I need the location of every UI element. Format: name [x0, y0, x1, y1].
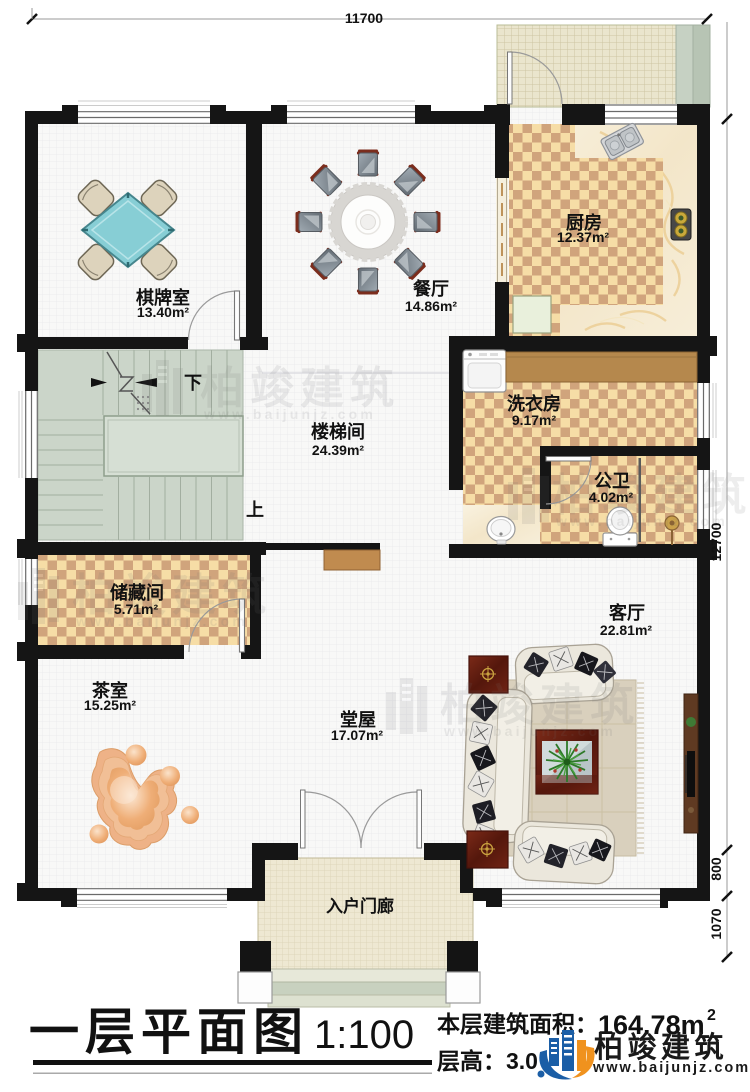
svg-text:www.baijunjz.com: www.baijunjz.com	[592, 1060, 750, 1076]
svg-text:15.25m²: 15.25m²	[84, 697, 136, 713]
svg-text:11700: 11700	[345, 10, 383, 26]
svg-text:www.baijunjz.com: www.baijunjz.com	[203, 406, 376, 422]
svg-text:4.02m²: 4.02m²	[589, 489, 634, 505]
svg-text:1:100: 1:100	[314, 1013, 414, 1057]
svg-text:14.86m²: 14.86m²	[405, 298, 457, 314]
svg-text:www.baijunjz.com: www.baijunjz.com	[443, 723, 616, 739]
svg-text:17.07m²: 17.07m²	[331, 727, 383, 743]
svg-text:22.81m²: 22.81m²	[600, 622, 652, 638]
svg-text:9.17m²: 9.17m²	[512, 412, 557, 428]
svg-text:800: 800	[708, 857, 724, 881]
svg-text:下: 下	[184, 373, 202, 393]
svg-text:入户门廊: 入户门廊	[326, 896, 394, 916]
svg-text:柏竣建筑: 柏竣建筑	[594, 1030, 728, 1064]
svg-text:客厅: 客厅	[609, 602, 645, 623]
svg-text:12.37m²: 12.37m²	[557, 229, 609, 245]
svg-text:www.baijunjz.com: www.baijunjz.com	[555, 513, 728, 529]
svg-text:13.40m²: 13.40m²	[137, 304, 189, 320]
svg-text:5.71m²: 5.71m²	[114, 601, 159, 617]
svg-text:www.baijunjz.com: www.baijunjz.com	[75, 613, 248, 629]
svg-text:楼梯间: 楼梯间	[311, 421, 365, 442]
svg-text:储藏间: 储藏间	[109, 582, 164, 603]
svg-text:2: 2	[707, 1007, 716, 1024]
svg-text:餐厅: 餐厅	[412, 278, 449, 299]
svg-text:一层平面图: 一层平面图	[29, 1004, 309, 1060]
svg-text:1070: 1070	[708, 908, 724, 939]
svg-text:层高：3.0: 层高：3.0	[437, 1048, 538, 1074]
svg-text:上: 上	[246, 500, 264, 520]
svg-text:12700: 12700	[708, 522, 724, 561]
svg-text:洗衣房: 洗衣房	[507, 393, 561, 414]
svg-text:24.39m²: 24.39m²	[312, 442, 364, 458]
svg-text:公卫: 公卫	[594, 471, 630, 491]
